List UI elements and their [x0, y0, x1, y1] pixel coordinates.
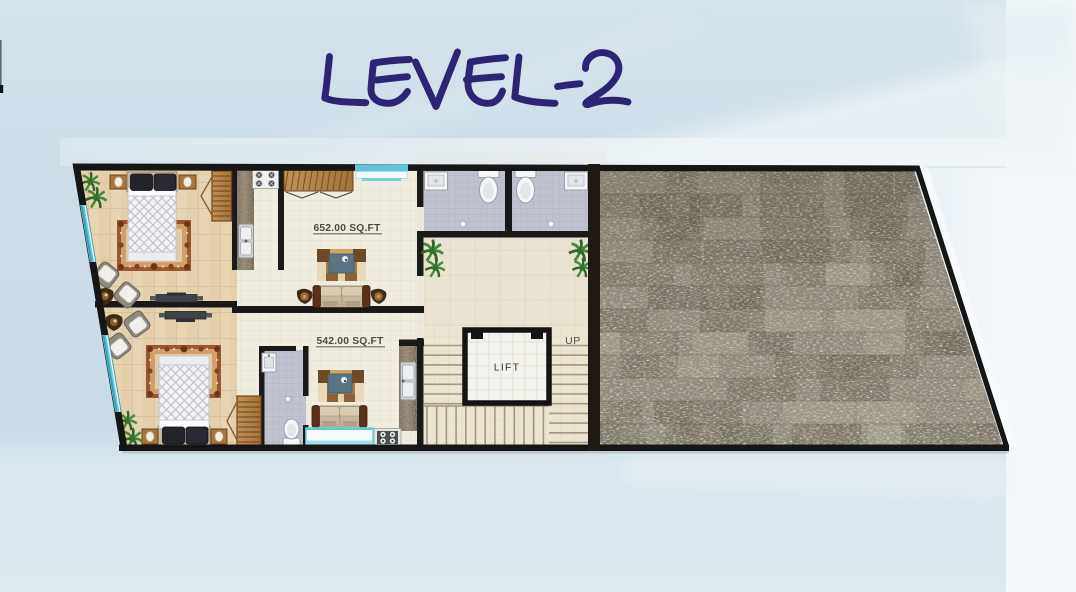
- svg-text:542.00 SQ.FT: 542.00 SQ.FT: [316, 336, 384, 347]
- svg-text:652.00 SQ.FT: 652.00 SQ.FT: [313, 223, 381, 234]
- svg-text:LIFT: LIFT: [494, 362, 520, 374]
- svg-text:UP: UP: [565, 335, 581, 347]
